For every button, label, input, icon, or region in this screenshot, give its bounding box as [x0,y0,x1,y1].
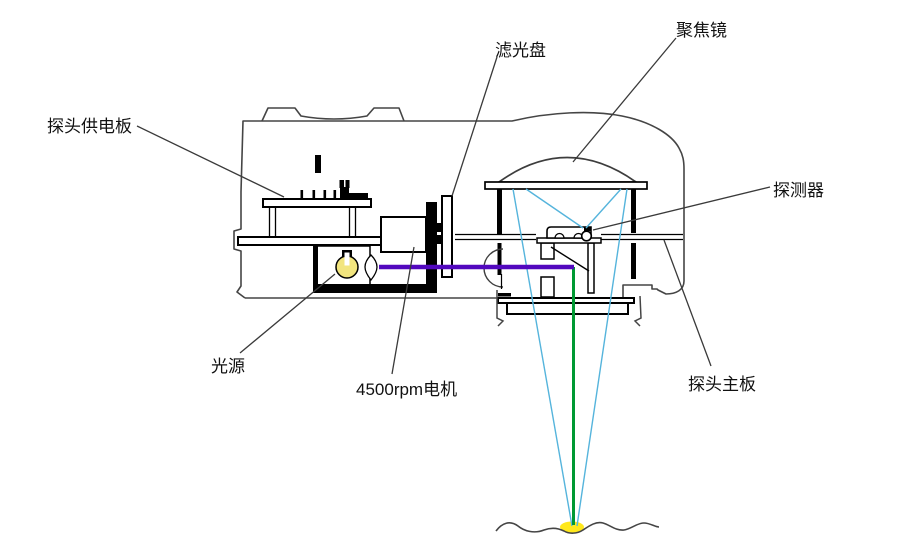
diagram-canvas: 探头供电板 滤光盘 聚焦镜 探测器 光源 4500rpm电机 探头主板 [0,0,912,550]
focus-ray-right [586,189,621,228]
leader-main-board [664,240,711,366]
lamp-box-left-wall [313,245,318,290]
leader-focusing-lens [573,38,676,162]
light-source-assembly [336,250,377,280]
lens-post-left-upper [497,188,502,235]
leader-lines [137,38,770,374]
label-detector: 探测器 [773,181,824,200]
detector-notch-left [555,234,564,239]
power-board-leg-right [350,207,356,237]
power-board-leg-left [270,207,276,237]
power-board-top-mark [315,155,321,173]
motor-body [381,217,426,252]
leader-power-board [137,126,284,197]
condenser-lens [365,255,377,280]
mounting-shelf [238,237,381,245]
connector-body [340,187,349,199]
connector-block-a [340,180,345,188]
lens-plate [485,182,647,189]
lens-post-right-lower [631,243,636,279]
label-focusing-lens: 聚焦镜 [676,21,727,40]
leader-detector [593,187,770,230]
pin-2 [313,190,316,199]
motor-bracket [426,202,437,293]
focus-ray-left [526,189,583,228]
connector-block-b [346,180,350,188]
detector-support-upper [541,243,554,259]
detector-support-lower [541,277,554,297]
power-board-pcb [263,199,371,207]
detector-eye [582,231,592,241]
base-flange-right [635,296,641,326]
lens-post-left-lower [498,243,502,275]
pin-1 [301,190,304,199]
base-black-tick [498,293,511,297]
label-main-board: 探头主板 [688,375,756,394]
label-light-source: 光源 [211,357,245,376]
detector-assembly [537,227,601,297]
lens-post-right-upper [631,188,636,233]
leader-light-source [240,274,335,353]
bulb-filament-slot [345,253,350,266]
detector-column-right [588,243,594,293]
label-filter-disk: 滤光盘 [495,41,546,60]
connector-base [349,193,368,199]
lamp-box-bottom [313,284,436,293]
leader-filter-disk [452,57,497,196]
label-power-board: 探头供电板 [47,117,132,136]
pin-4 [334,190,337,199]
label-motor: 4500rpm电机 [356,380,457,399]
detector-corner-mark [584,227,591,231]
aperture-base [497,290,641,326]
lens-dome [499,158,636,183]
housing-top-bump [262,108,404,121]
power-board-assembly [263,155,371,237]
pin-3 [324,190,327,199]
probe-optical-diagram: 探头供电板 滤光盘 聚焦镜 探测器 光源 4500rpm电机 探头主板 [0,0,912,550]
